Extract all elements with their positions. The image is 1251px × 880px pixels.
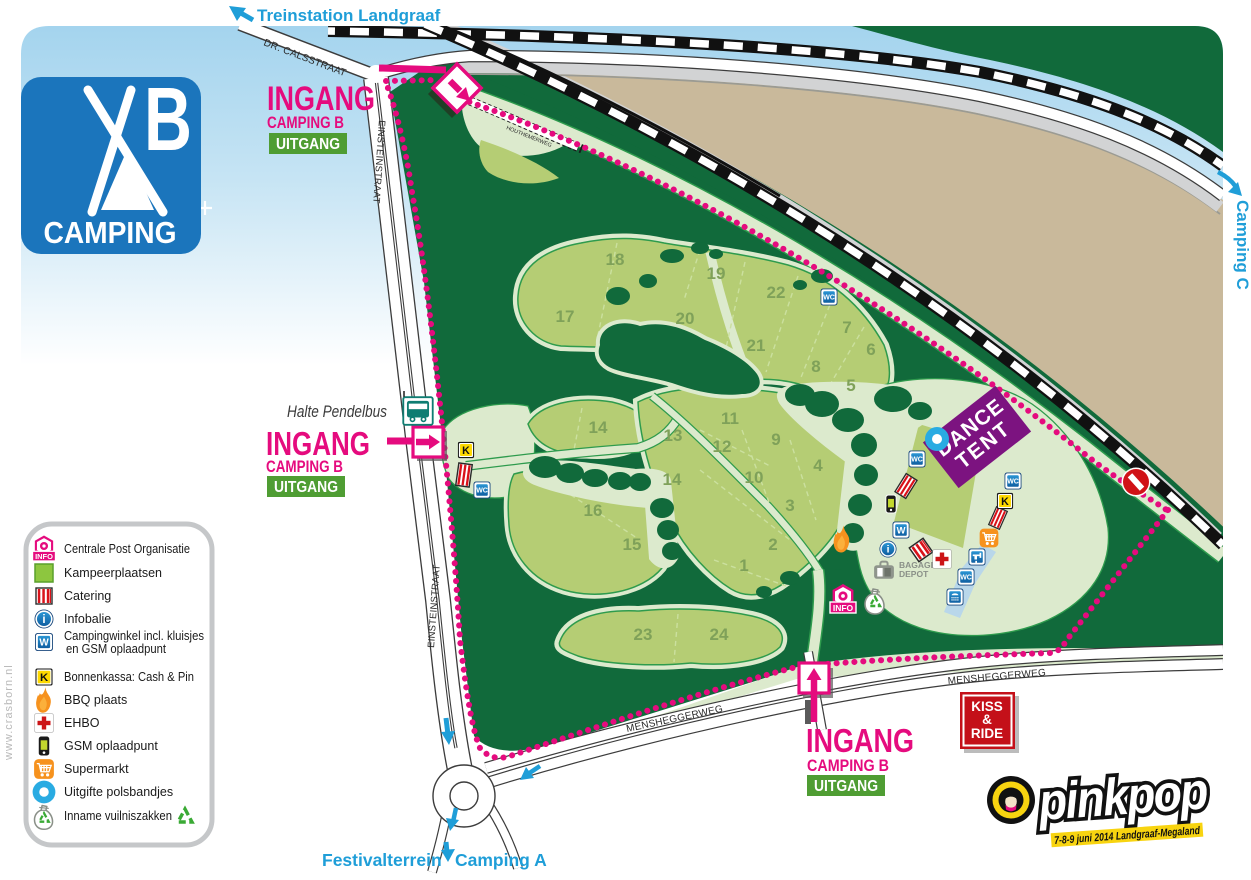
svg-text:4: 4 [813,456,823,475]
svg-text:13: 13 [664,426,683,445]
svg-text:Campingwinkel incl. kluisjes: Campingwinkel incl. kluisjes [64,629,204,643]
svg-text:Catering: Catering [64,589,111,603]
svg-text:8: 8 [811,357,820,376]
svg-text:Supermarkt: Supermarkt [64,762,129,776]
svg-text:Kampeerplaatsen: Kampeerplaatsen [64,566,162,580]
svg-text:CAMPING B: CAMPING B [266,458,343,476]
svg-text:UITGANG: UITGANG [814,778,878,795]
svg-text:10: 10 [745,468,764,487]
svg-text:INGANG: INGANG [266,425,370,462]
svg-text:21: 21 [747,336,766,355]
svg-text:15: 15 [623,535,642,554]
svg-text:23: 23 [634,625,653,644]
svg-text:1: 1 [739,556,748,575]
svg-text:CAMPING B: CAMPING B [267,114,344,132]
svg-text:5: 5 [846,376,855,395]
svg-text:17: 17 [556,307,575,326]
svg-text:Festivalterrein: Festivalterrein [322,850,442,870]
svg-text:Inname vuilniszakken: Inname vuilniszakken [64,809,172,823]
svg-text:22: 22 [767,283,786,302]
svg-text:B: B [144,70,192,170]
svg-text:Bonnenkassa: Cash & Pin: Bonnenkassa: Cash & Pin [64,670,194,684]
svg-text:&: & [982,712,992,727]
svg-text:www.crasborn.nl: www.crasborn.nl [3,664,15,761]
svg-text:DEPOT: DEPOT [899,569,929,579]
svg-text:BBQ plaats: BBQ plaats [64,693,127,707]
svg-text:14: 14 [589,418,608,437]
svg-text:GSM oplaadpunt: GSM oplaadpunt [64,739,158,753]
svg-text:Infobalie: Infobalie [64,612,111,626]
svg-text:7: 7 [842,318,851,337]
svg-text:2: 2 [768,535,777,554]
svg-text:UITGANG: UITGANG [276,136,340,153]
svg-text:en GSM oplaadpunt: en GSM oplaadpunt [66,642,166,656]
svg-text:19: 19 [707,264,726,283]
svg-text:RIDE: RIDE [971,726,1003,741]
svg-text:3: 3 [785,496,794,515]
svg-text:18: 18 [606,250,625,269]
svg-text:UITGANG: UITGANG [274,479,338,496]
svg-text:24: 24 [710,625,729,644]
svg-text:pinkpop: pinkpop [1035,762,1210,832]
svg-text:9: 9 [771,430,780,449]
svg-text:EHBO: EHBO [64,716,100,730]
svg-text:Uitgifte polsbandjes: Uitgifte polsbandjes [64,785,173,799]
svg-text:Centrale Post Organisatie: Centrale Post Organisatie [64,542,190,556]
svg-text:CAMPING B: CAMPING B [807,757,889,775]
svg-text:20: 20 [676,309,695,328]
svg-text:14: 14 [663,470,682,489]
svg-text:INGANG: INGANG [267,80,375,118]
svg-text:11: 11 [721,409,739,428]
svg-text:16: 16 [584,501,603,520]
svg-text:Camping A: Camping A [455,850,547,870]
svg-text:Treinstation Landgraaf: Treinstation Landgraaf [257,6,441,25]
svg-text:INGANG: INGANG [806,722,914,759]
svg-text:12: 12 [713,437,732,456]
svg-text:Halte Pendelbus: Halte Pendelbus [287,403,387,421]
svg-text:CAMPING: CAMPING [44,215,177,250]
svg-text:6: 6 [866,340,875,359]
svg-text:Camping C: Camping C [1233,200,1251,290]
